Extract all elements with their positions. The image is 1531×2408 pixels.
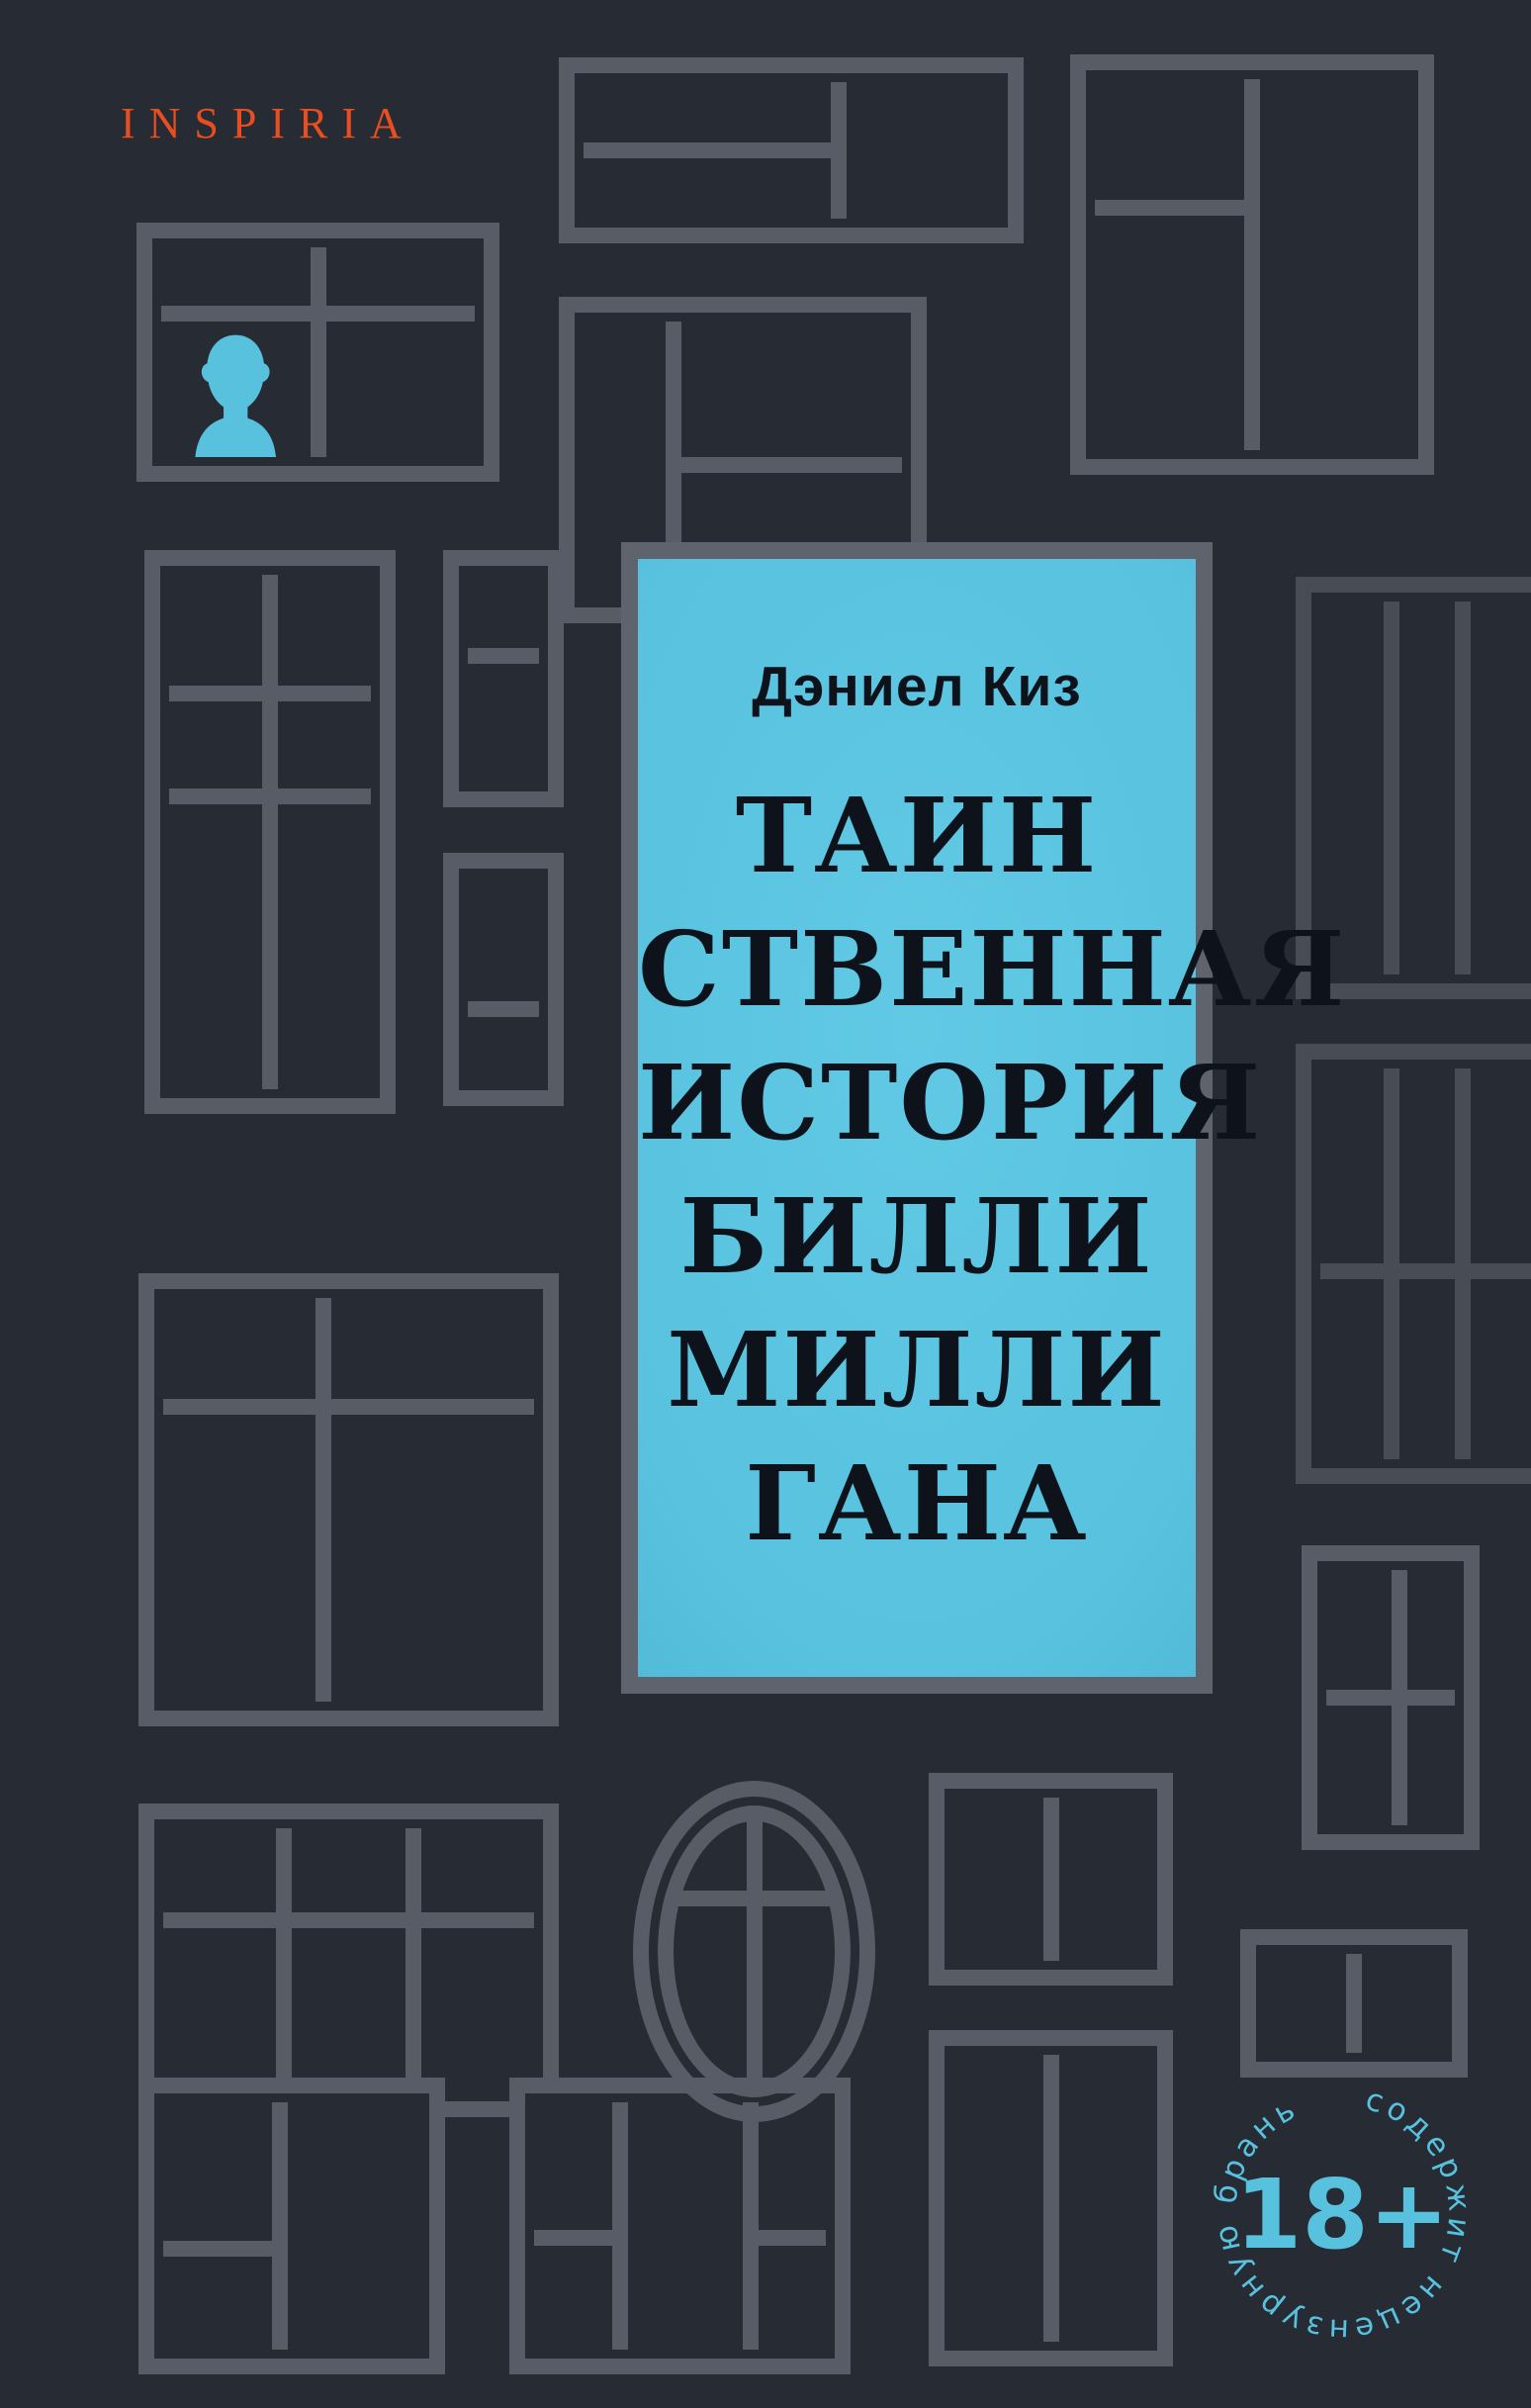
window-top-right	[1070, 54, 1434, 475]
window-pane	[1260, 79, 1409, 450]
window-pane	[1471, 1279, 1531, 1459]
window-pane	[584, 82, 831, 142]
window-narrow-lower	[443, 853, 564, 1106]
window-pane	[681, 322, 902, 457]
window-pane	[628, 2102, 743, 2350]
window-oval	[633, 1781, 875, 2122]
window-pane	[584, 158, 831, 219]
window-bottom-center	[509, 2078, 851, 2374]
window-pane	[1059, 2055, 1149, 2342]
book-title: ТАИН СТВЕННАЯ ИСТОРИЯ БИЛЛИ МИЛЛИ ГАНА	[638, 769, 1196, 1570]
title-line: ГАНА	[638, 1436, 1196, 1570]
window-grid	[584, 82, 999, 219]
window-pane	[1265, 1954, 1346, 2053]
window-with-person	[136, 223, 499, 482]
window-pane	[1399, 1279, 1455, 1459]
window-center-bottom-lower	[929, 2030, 1173, 2366]
window-center-bottom-upper	[929, 1773, 1173, 1986]
window-pane	[421, 1928, 534, 2092]
window-pane	[169, 701, 262, 788]
window-pane	[278, 804, 371, 1089]
window-grid	[468, 878, 539, 1081]
window-right-short	[1240, 1929, 1468, 2078]
window-pane	[1059, 1798, 1149, 1961]
window-grid	[1326, 1570, 1455, 1825]
window-pane	[1326, 1706, 1392, 1825]
window-pane	[169, 575, 262, 686]
window-pane	[278, 575, 371, 686]
window-pane	[1320, 1068, 1384, 1263]
window-pane	[468, 1017, 539, 1081]
window-top-center	[559, 57, 1024, 243]
window-pane	[1095, 79, 1244, 200]
window-pane	[1399, 602, 1455, 974]
window-grid	[163, 2102, 420, 2350]
central-window-panel: Дэниел Киз ТАИН СТВЕННАЯ ИСТОРИЯ БИЛЛИ М…	[621, 542, 1213, 1694]
window-pane	[161, 247, 311, 306]
window-pane	[1362, 1954, 1443, 2053]
window-pane	[163, 1928, 276, 2092]
window-pane	[468, 575, 539, 648]
window-pane	[953, 1798, 1043, 1961]
window-pane	[534, 2102, 612, 2230]
window-pane	[1095, 216, 1244, 450]
book-cover: INSPIRIA Дэниел Киз ТАИН СТВЕННАЯ ИСТОРИ…	[0, 0, 1531, 2408]
window-pane	[468, 878, 539, 1001]
oval-window-glass	[658, 1806, 851, 2097]
window-grid	[161, 247, 475, 457]
window-grid	[1320, 1068, 1531, 1459]
window-pane	[161, 322, 311, 457]
window-pane	[292, 1928, 405, 2092]
age-rating-badge: содержит нецензурную брань 18+	[1194, 2065, 1490, 2362]
window-pane	[1471, 1068, 1531, 1263]
window-pane	[1399, 1068, 1455, 1263]
window-pane	[759, 2102, 826, 2230]
window-pane	[163, 2102, 272, 2241]
title-line: МИЛЛИ	[638, 1303, 1196, 1436]
window-bottom-left3	[138, 1804, 559, 2117]
title-line: ТАИН	[638, 769, 1196, 902]
publisher-logo: INSPIRIA	[121, 98, 415, 148]
title-line: ИСТОРИЯ	[638, 1036, 1196, 1169]
window-pane	[421, 1828, 534, 1912]
window-grid	[1320, 602, 1531, 974]
window-pane	[331, 1298, 534, 1399]
window-pane	[278, 701, 371, 788]
age-badge-label: 18+	[1235, 2159, 1449, 2270]
window-pane	[847, 82, 999, 219]
window-pane	[1471, 602, 1531, 974]
window-narrow-upper	[443, 550, 564, 807]
window-grid	[534, 2102, 826, 2350]
window-pane	[163, 1415, 315, 1702]
window-pane	[1407, 1706, 1455, 1825]
window-pane	[169, 804, 262, 1089]
window-right-strip-bottom	[1296, 1044, 1531, 1484]
window-pane	[1407, 1570, 1455, 1690]
window-pane	[326, 247, 476, 306]
window-pane	[1326, 1570, 1392, 1690]
window-bottom-far-left	[138, 2078, 445, 2374]
author-name: Дэниел Киз	[638, 654, 1196, 719]
window-pane	[534, 2246, 612, 2350]
window-grid	[169, 575, 371, 1089]
window-pane	[163, 2257, 272, 2350]
window-pane	[759, 2246, 826, 2350]
window-grid	[163, 1298, 534, 1702]
title-line: БИЛЛИ	[638, 1169, 1196, 1303]
person-silhouette-icon	[170, 328, 301, 457]
window-grid	[1265, 1954, 1443, 2053]
window-pane	[331, 1415, 534, 1702]
window-pane	[292, 1828, 405, 1912]
window-pane	[1320, 1279, 1384, 1459]
window-grid	[953, 2055, 1148, 2342]
window-pane	[288, 2102, 420, 2350]
window-pane	[468, 664, 539, 783]
window-pane	[326, 322, 476, 457]
window-left-tall	[144, 550, 396, 1114]
window-pane	[163, 1828, 276, 1912]
window-grid	[468, 575, 539, 783]
oval-window-inner-ring	[658, 1806, 851, 2097]
window-pane	[953, 2055, 1043, 2342]
window-grid	[953, 1798, 1148, 1961]
window-pane	[163, 1298, 315, 1399]
window-right-small	[1302, 1545, 1480, 1850]
window-grid	[1095, 79, 1409, 450]
title-line: СТВЕННАЯ	[638, 902, 1196, 1036]
window-grid	[163, 1828, 534, 2092]
window-mid-left	[138, 1273, 559, 1726]
